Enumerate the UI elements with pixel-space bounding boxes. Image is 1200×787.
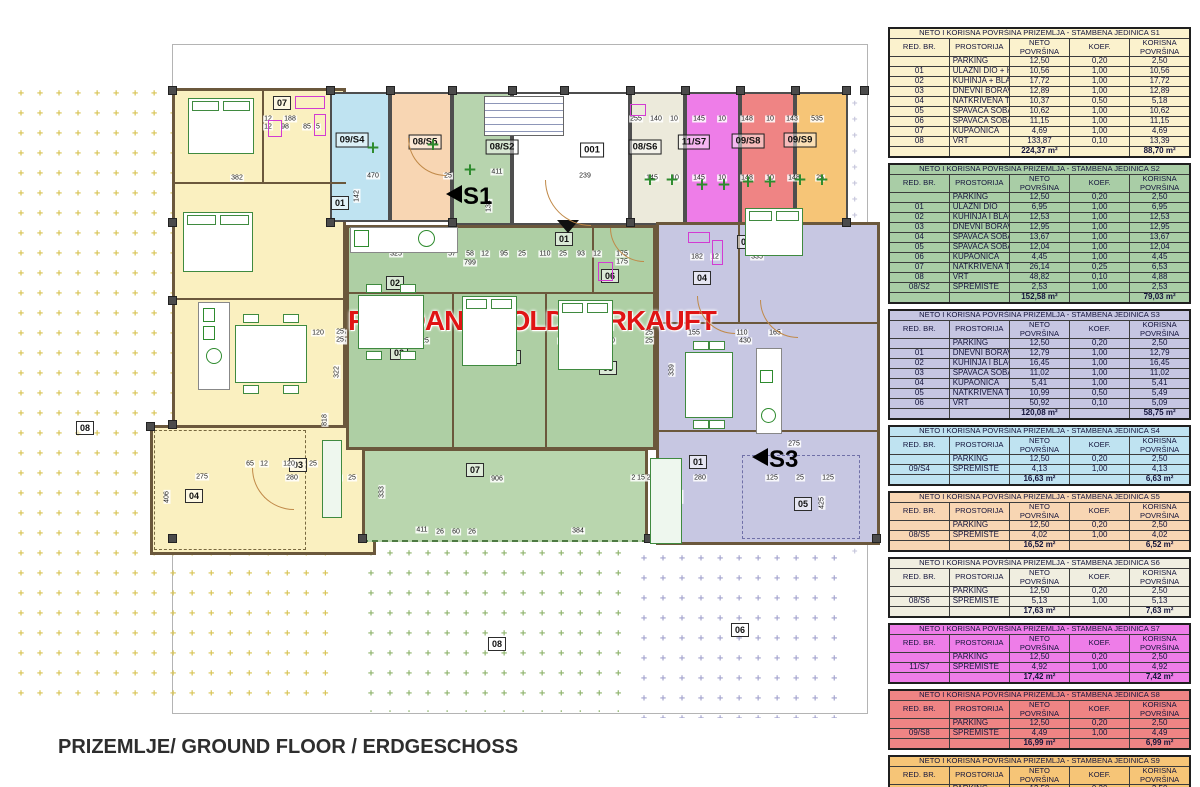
plant-icon: + [426, 135, 440, 155]
pillow [587, 303, 608, 313]
col-header: KORISNAPOVRŠINA [1130, 39, 1190, 57]
wall-pier [860, 86, 869, 95]
table-row: PARKING12,500,202,50 [889, 653, 1190, 663]
dimension-label: 142 [354, 189, 361, 203]
chair [283, 385, 299, 394]
dimension-label: 322 [334, 365, 341, 379]
table-row: 11/S7SPREMIŠTE4,921,004,92 [889, 663, 1190, 673]
chair [693, 420, 709, 429]
col-header: RED. BR. [889, 569, 949, 587]
col-header: KORISNAPOVRŠINA [1130, 437, 1190, 455]
dimension-label: 339 [669, 363, 676, 377]
dimension-label: 406 [164, 490, 171, 504]
col-header: KOEF. [1070, 767, 1130, 785]
dimension-label: 143 [785, 116, 799, 123]
dimension-label: 145 [692, 116, 706, 123]
pillow [220, 215, 249, 225]
table-row: 05SPAVAĆA SOBA12,041,0012,04 [889, 243, 1190, 253]
left-triangle-icon [446, 185, 462, 203]
table-total-row: 17,42 m²7,42 m² [889, 673, 1190, 684]
plant-icon: + [717, 175, 731, 195]
plant-icon: + [695, 175, 709, 195]
table-row: PARKING12,500,202,50 [889, 193, 1190, 203]
appliance [203, 308, 215, 322]
dimension-label: 93 [576, 251, 586, 258]
room-label: 05 [794, 497, 812, 511]
total-korisna: 6,99 m² [1130, 739, 1190, 750]
screenshot-root: ++++++++++++++++++++++++++++++++++++++++… [0, 0, 1200, 787]
wall [346, 292, 656, 294]
appliance [203, 326, 215, 340]
table-row: 05NATKRIVENA TERASA10,990,505,49 [889, 389, 1190, 399]
dimension-label: 535 [810, 116, 824, 123]
pillow [192, 101, 219, 111]
bath-fixture [688, 232, 710, 243]
appliance [760, 370, 773, 383]
table-row: PARKING12,500,202,50 [889, 455, 1190, 465]
total-neto: 17,42 m² [1009, 673, 1069, 684]
wall-pier [508, 86, 517, 95]
table-row: PARKING12,500,202,50 [889, 339, 1190, 349]
pillow [776, 211, 799, 221]
dimension-label: 818 [322, 413, 329, 427]
wall-pier [560, 86, 569, 95]
dimension-label: 25 [347, 475, 357, 482]
col-header: KOEF. [1070, 437, 1130, 455]
total-korisna: 6,52 m² [1130, 541, 1190, 552]
col-header: KOEF. [1070, 701, 1130, 719]
table-row: 05SPAVAĆA SOBA10,621,0010,62 [889, 107, 1190, 117]
storage-09-s9 [795, 92, 848, 225]
wall-pier [326, 218, 335, 227]
col-header: PROSTORIJA [949, 321, 1009, 339]
room-label: 04 [185, 489, 203, 503]
table-row: 06SPAVAĆA SOBA11,151,0011,15 [889, 117, 1190, 127]
dimension-label: 25 [795, 475, 805, 482]
col-header: NETOPOVRŠINA [1009, 503, 1069, 521]
dimension-label: 12 [592, 251, 602, 258]
chair [693, 341, 709, 350]
table-row: 06KUPAONICA4,451,004,45 [889, 253, 1190, 263]
area-table-s8: NETO I KORISNA POVRŠINA PRIZEMLJA - STAM… [888, 689, 1191, 750]
table-title: NETO I KORISNA POVRŠINA PRIZEMLJA - STAM… [889, 164, 1190, 175]
dimension-label: 26 [467, 529, 477, 536]
col-header: KORISNAPOVRŠINA [1130, 767, 1190, 785]
dining-table [685, 352, 733, 418]
table-row: PARKING12,500,202,50 [889, 57, 1190, 67]
sink [418, 230, 435, 247]
col-header: PROSTORIJA [949, 569, 1009, 587]
table-row: 06VRT50,920,105,09 [889, 399, 1190, 409]
unit-label-09-S4: 09/S4 [336, 133, 369, 148]
left-triangle-icon [752, 448, 768, 466]
wall-pier [358, 534, 367, 543]
plant-icon: + [665, 170, 679, 190]
unit-label-09-S8: 09/S8 [732, 134, 765, 149]
garden-hatch-green: ++++++++++++++++++++++++++++++++++++++++… [362, 540, 648, 712]
wall-pier [681, 86, 690, 95]
area-table-s1: NETO I KORISNA POVRŠINA PRIZEMLJA - STAM… [888, 27, 1191, 158]
col-header: RED. BR. [889, 437, 949, 455]
wall-pier [791, 86, 800, 95]
wall-pier [842, 86, 851, 95]
dimension-label: 148 [740, 116, 754, 123]
col-header: PROSTORIJA [949, 503, 1009, 521]
table-title: NETO I KORISNA POVRŠINA PRIZEMLJA - STAM… [889, 756, 1190, 767]
pillow [466, 299, 487, 309]
wall-pier [386, 86, 395, 95]
table-row: 07NATKRIVENA TERASA26,140,256,53 [889, 263, 1190, 273]
page-title: PRIZEMLJE/ GROUND FLOOR / ERDGESCHOSS [58, 736, 518, 759]
dining-table [358, 295, 424, 349]
table-row: 09/S4SPREMIŠTE4,131,004,13 [889, 465, 1190, 475]
dimension-label: 25 [644, 338, 654, 345]
col-header: KORISNAPOVRŠINA [1130, 569, 1190, 587]
col-header: NETOPOVRŠINA [1009, 321, 1069, 339]
wall [262, 88, 264, 184]
dimension-label: 25 [335, 329, 345, 336]
dimension-label: 25 [644, 330, 654, 337]
table-row: 08/S2SPREMIŠTE2,531,002,53 [889, 283, 1190, 293]
table-title: NETO I KORISNA POVRŠINA PRIZEMLJA - STAM… [889, 28, 1190, 39]
area-table-s9: NETO I KORISNA POVRŠINA PRIZEMLJA - STAM… [888, 755, 1191, 787]
col-header: KORISNAPOVRŠINA [1130, 175, 1190, 193]
total-korisna: 79,03 m² [1130, 293, 1190, 304]
table-row: 01ULAZNI DIO6,951,006,95 [889, 203, 1190, 213]
chair [243, 314, 259, 323]
wall [592, 225, 594, 294]
total-neto: 16,99 m² [1009, 739, 1069, 750]
storage-09-s8 [740, 92, 795, 225]
tables-panel: NETO I KORISNA POVRŠINA PRIZEMLJA - STAM… [888, 27, 1191, 787]
room-label: 01 [689, 455, 707, 469]
col-header: PROSTORIJA [949, 437, 1009, 455]
bath-fixture [314, 114, 326, 136]
col-header: KORISNAPOVRŠINA [1130, 701, 1190, 719]
col-header: RED. BR. [889, 635, 949, 653]
total-neto: 224,37 m² [1009, 147, 1069, 158]
plant-icon: + [763, 172, 777, 192]
garden-label: 08 [76, 421, 94, 435]
table-row: 03SPAVAĆA SOBA11,021,0011,02 [889, 369, 1190, 379]
col-header: RED. BR. [889, 175, 949, 193]
dimension-label: 12 [259, 461, 269, 468]
dimension-label: 26 [435, 529, 445, 536]
table-row: PARKING12,500,202,50 [889, 587, 1190, 597]
table-title: NETO I KORISNA POVRŠINA PRIZEMLJA - STAM… [889, 558, 1190, 569]
col-header: NETOPOVRŠINA [1009, 39, 1069, 57]
dimension-label: 425 [819, 496, 826, 510]
pillow [491, 299, 512, 309]
col-header: KOEF. [1070, 39, 1130, 57]
dimension-label: 25 [335, 337, 345, 344]
table-row: 02KUHINJA + BLAGOVAONICA17,721,0017,72 [889, 77, 1190, 87]
sofa [322, 440, 342, 518]
dimension-label: 140 [649, 116, 663, 123]
floor-plan: ++++++++++++++++++++++++++++++++++++++++… [0, 0, 888, 740]
table-title: NETO I KORISNA POVRŠINA PRIZEMLJA - STAM… [889, 690, 1190, 701]
dimension-label: 382 [230, 175, 244, 182]
garden-hatch-lavender: ++++++++++++++++++++++++++++++++++++++++… [635, 545, 868, 718]
dimension-label: 25 [558, 251, 568, 258]
area-table-s2: NETO I KORISNA POVRŠINA PRIZEMLJA - STAM… [888, 163, 1191, 304]
chair [400, 284, 416, 293]
total-neto: 17,63 m² [1009, 607, 1069, 618]
dimension-label: 906 [490, 476, 504, 483]
table-row: 07KUPAONICA4,691,004,69 [889, 127, 1190, 137]
area-table-s7: NETO I KORISNA POVRŠINA PRIZEMLJA - STAM… [888, 623, 1191, 684]
wall-pier [626, 86, 635, 95]
pillow [562, 303, 583, 313]
chair [366, 351, 382, 360]
wall-pier [626, 218, 635, 227]
table-title: NETO I KORISNA POVRŠINA PRIZEMLJA - STAM… [889, 624, 1190, 635]
wall-pier [736, 86, 745, 95]
chair [243, 385, 259, 394]
dimension-label: 65 [245, 461, 255, 468]
dimension-label: 275 [195, 474, 209, 481]
dimension-label: 10 [765, 116, 775, 123]
chair [283, 314, 299, 323]
col-header: KOEF. [1070, 503, 1130, 521]
dimension-label: 125 [821, 475, 835, 482]
total-neto: 16,63 m² [1009, 475, 1069, 486]
col-header: KOEF. [1070, 175, 1130, 193]
col-header: KORISNAPOVRŠINA [1130, 321, 1190, 339]
table-row: 01ULAZNI DIO + HODNIK10,561,0010,56 [889, 67, 1190, 77]
dimension-label: 188 [283, 116, 297, 123]
wall-pier [168, 420, 177, 429]
table-row: 02KUHINJA I BLAGOVAONICA12,531,0012,53 [889, 213, 1190, 223]
dimension-label: 333 [379, 485, 386, 499]
col-header: RED. BR. [889, 503, 949, 521]
area-table-s3: NETO I KORISNA POVRŠINA PRIZEMLJA - STAM… [888, 309, 1191, 420]
col-header: KOEF. [1070, 635, 1130, 653]
area-table-s6: NETO I KORISNA POVRŠINA PRIZEMLJA - STAM… [888, 557, 1191, 618]
pillow [749, 211, 772, 221]
dimension-label: 85 [302, 124, 312, 131]
dimension-label: 125 [765, 475, 779, 482]
table-total-row: 152,58 m²79,03 m² [889, 293, 1190, 304]
unit-s2-terrace [362, 448, 648, 542]
table-title: NETO I KORISNA POVRŠINA PRIZEMLJA - STAM… [889, 426, 1190, 437]
dining-table [235, 325, 307, 383]
dimension-label: 430 [738, 338, 752, 345]
col-header: NETOPOVRŠINA [1009, 437, 1069, 455]
section-arrow-s1: S1 [446, 183, 492, 211]
total-neto: 120,08 m² [1009, 409, 1069, 420]
garden-label: 08 [488, 637, 506, 651]
col-header: NETOPOVRŠINA [1009, 175, 1069, 193]
table-row: 04SPAVAĆA SOBA13,671,0013,67 [889, 233, 1190, 243]
table-row: 04KUPAONICA5,411,005,41 [889, 379, 1190, 389]
col-header: NETOPOVRŠINA [1009, 635, 1069, 653]
dimension-label: 58 [465, 251, 475, 258]
sofa [650, 458, 682, 544]
staircase [484, 96, 564, 136]
chair [709, 341, 725, 350]
col-header: KORISNAPOVRŠINA [1130, 635, 1190, 653]
appliance [354, 230, 369, 247]
dimension-label: 110 [538, 251, 551, 258]
table-row: PARKING12,500,202,50 [889, 521, 1190, 531]
sink [206, 348, 222, 364]
table-row: 08/S5SPREMIŠTE4,021,004,02 [889, 531, 1190, 541]
plant-icon: + [463, 160, 477, 180]
pillow [223, 101, 250, 111]
room-label: 01 [331, 196, 349, 210]
dimension-label: 799 [463, 260, 477, 267]
dimension-label: 280 [693, 475, 707, 482]
table-row: PARKING12,500,202,50 [889, 719, 1190, 729]
table-row: 09/S8SPREMIŠTE4,491,004,49 [889, 729, 1190, 739]
dimension-label: 175 [615, 259, 629, 266]
col-header: PROSTORIJA [949, 175, 1009, 193]
dimension-label: 384 [571, 528, 585, 535]
wall-pier [146, 422, 155, 431]
area-table-s4: NETO I KORISNA POVRŠINA PRIZEMLJA - STAM… [888, 425, 1191, 486]
total-korisna: 6,63 m² [1130, 475, 1190, 486]
table-total-row: 120,08 m²58,75 m² [889, 409, 1190, 420]
area-table-s5: NETO I KORISNA POVRŠINA PRIZEMLJA - STAM… [888, 491, 1191, 552]
garden-label: 06 [731, 623, 749, 637]
dimension-label: 255 [629, 116, 643, 123]
room-label: 07 [273, 96, 291, 110]
dimension-label: 411 [415, 527, 428, 534]
table-row: 02KUHINJA I BLAGOVAONICA16,451,0016,45 [889, 359, 1190, 369]
table-total-row: 224,37 m²88,70 m² [889, 147, 1190, 158]
section-arrow-label: S1 [463, 183, 492, 210]
unit-label-11-S7: 11/S7 [678, 135, 710, 150]
dimension-label: 95 [499, 251, 509, 258]
bath-fixture [598, 262, 613, 281]
total-korisna: 7,42 m² [1130, 673, 1190, 684]
room-label: 01 [555, 232, 573, 246]
pillow [187, 215, 216, 225]
total-neto: 152,58 m² [1009, 293, 1069, 304]
dimension-label: 25 [308, 461, 318, 468]
table-row: 04NATKRIVENA TERASA10,370,505,18 [889, 97, 1190, 107]
table-total-row: 16,99 m²6,99 m² [889, 739, 1190, 750]
plant-icon: + [643, 170, 657, 190]
bath-fixture [712, 240, 723, 265]
chair [366, 284, 382, 293]
table-title: NETO I KORISNA POVRŠINA PRIZEMLJA - STAM… [889, 492, 1190, 503]
dimension-label: 120 [311, 330, 325, 337]
unit-label-001: 001 [580, 143, 604, 158]
bath-fixture [295, 96, 325, 109]
dimension-label: 411 [490, 169, 503, 176]
wall-pier [872, 534, 881, 543]
dimension-label: 60 [451, 529, 461, 536]
dimension-label: 25 [517, 251, 527, 258]
bath-fixture [630, 104, 646, 116]
dimension-label: 10 [669, 116, 679, 123]
col-header: KORISNAPOVRŠINA [1130, 503, 1190, 521]
col-header: NETOPOVRŠINA [1009, 701, 1069, 719]
table-row: 03DNEVNI BORAVAK12,891,0012,89 [889, 87, 1190, 97]
table-row: 01DNEVNI BORAVAK12,791,0012,79 [889, 349, 1190, 359]
section-arrow-label: S3 [769, 446, 798, 473]
plant-icon: + [815, 170, 829, 190]
wall-pier [326, 86, 335, 95]
col-header: PROSTORIJA [949, 767, 1009, 785]
dimension-label: 182 [690, 254, 704, 261]
chair [400, 351, 416, 360]
table-row: 08VRT133,870,1013,39 [889, 137, 1190, 147]
unit-label-09-S9: 09/S9 [784, 133, 817, 148]
wall-pier [168, 534, 177, 543]
total-korisna: 58,75 m² [1130, 409, 1190, 420]
dimension-label: 110 [735, 330, 748, 337]
col-header: PROSTORIJA [949, 701, 1009, 719]
col-header: RED. BR. [889, 39, 949, 57]
unit-label-08-S2: 08/S2 [486, 140, 519, 155]
col-header: RED. BR. [889, 321, 949, 339]
total-korisna: 88,70 m² [1130, 147, 1190, 158]
col-header: NETOPOVRŠINA [1009, 569, 1069, 587]
plant-icon: + [793, 170, 807, 190]
wall [172, 298, 346, 300]
col-header: NETOPOVRŠINA [1009, 767, 1069, 785]
dimension-label: 120 [282, 461, 296, 468]
plant-icon: + [366, 138, 380, 158]
wall-pier [168, 218, 177, 227]
storage-11-s7 [685, 92, 740, 225]
table-row: 08VRT48,820,104,88 [889, 273, 1190, 283]
wall-pier [842, 218, 851, 227]
section-arrow-s3: S3 [752, 446, 798, 474]
wall [172, 182, 346, 184]
table-row: 08/S6SPREMIŠTE5,131,005,13 [889, 597, 1190, 607]
chair [709, 420, 725, 429]
col-header: RED. BR. [889, 701, 949, 719]
col-header: RED. BR. [889, 767, 949, 785]
room-label: 04 [693, 271, 711, 285]
unit-label-08-S6: 08/S6 [629, 140, 662, 155]
col-header: PROSTORIJA [949, 635, 1009, 653]
col-header: PROSTORIJA [949, 39, 1009, 57]
total-korisna: 7,63 m² [1130, 607, 1190, 618]
table-title: NETO I KORISNA POVRŠINA PRIZEMLJA - STAM… [889, 310, 1190, 321]
table-total-row: 16,52 m²6,52 m² [889, 541, 1190, 552]
sink [761, 408, 776, 423]
plant-icon: + [741, 172, 755, 192]
dimension-label: 12 [480, 251, 490, 258]
dimension-label: 10 [717, 116, 727, 123]
dimension-label: 155 [687, 330, 701, 337]
table-total-row: 17,63 m²7,63 m² [889, 607, 1190, 618]
dimension-label: 470 [366, 173, 380, 180]
room-label: 07 [466, 463, 484, 477]
col-header: KOEF. [1070, 569, 1130, 587]
wall-pier [168, 296, 177, 305]
table-total-row: 16,63 m²6,63 m² [889, 475, 1190, 486]
total-neto: 16,52 m² [1009, 541, 1069, 552]
dimension-label: 239 [578, 173, 592, 180]
table-row: 03DNEVNI BORAVAK12,951,0012,95 [889, 223, 1190, 233]
wall-pier [168, 86, 177, 95]
bath-fixture [268, 120, 282, 137]
wall-pier [448, 86, 457, 95]
col-header: KOEF. [1070, 321, 1130, 339]
wall-pier [448, 218, 457, 227]
